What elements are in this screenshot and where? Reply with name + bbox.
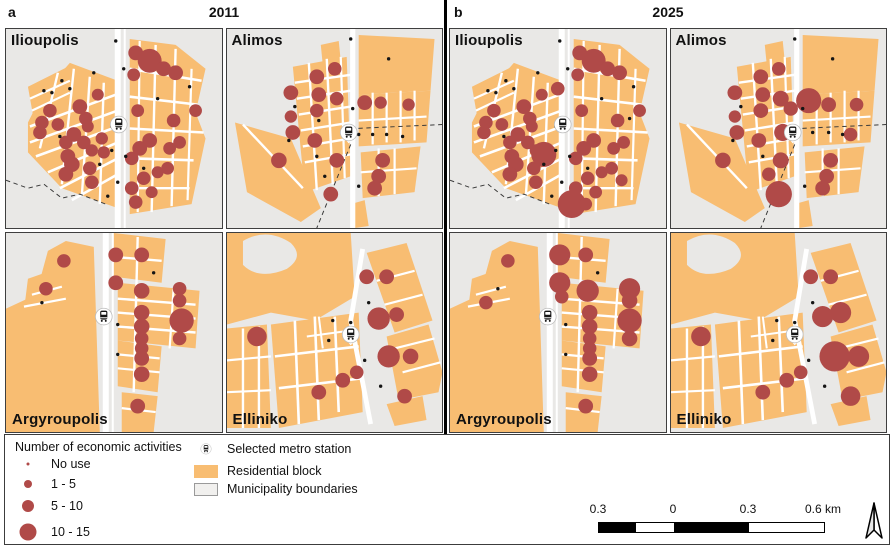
- no-use-symbol: [15, 456, 43, 472]
- map-label-elliniko: Elliniko: [677, 411, 732, 428]
- legend-label-10-15: 10 - 15: [51, 525, 90, 539]
- map-canvas-a-ilioupolis: [6, 29, 222, 228]
- map-canvas-b-ilioupolis: [450, 29, 666, 228]
- scale-label-1: 0: [670, 502, 677, 516]
- map-canvas-b-argyroupolis: [450, 233, 666, 432]
- legend-label-boundaries: Municipality boundaries: [227, 482, 358, 496]
- panel-b-year: 2025: [652, 4, 683, 20]
- map-label-ilioupolis: Ilioupolis: [11, 32, 79, 49]
- map-canvas-b-alimos: [671, 29, 887, 228]
- circle-5-10-symbol: [15, 495, 43, 517]
- map-label-alimos: Alimos: [232, 32, 283, 49]
- map-a-elliniko: Elliniko: [226, 232, 444, 433]
- map-b-argyroupolis: Argyroupolis: [449, 232, 667, 433]
- map-b-alimos: Alimos: [670, 28, 888, 229]
- map-label-elliniko: Elliniko: [233, 411, 288, 428]
- legend-label-1-5: 1 - 5: [51, 477, 76, 491]
- metro-station-icon: [199, 442, 213, 457]
- map-label-ilioupolis: Ilioupolis: [455, 32, 523, 49]
- scale-label-3: 0.6 km: [805, 502, 841, 516]
- panel-b-letter: b: [454, 4, 463, 20]
- scale-label-0: 0.3: [590, 502, 607, 516]
- circle-1-5-symbol: [15, 475, 43, 493]
- legend-label-5-10: 5 - 10: [51, 499, 83, 513]
- municipality-boundary-swatch: [194, 483, 218, 496]
- panel-a-year: 2011: [209, 4, 239, 20]
- panel-divider: [444, 0, 447, 434]
- map-canvas-a-elliniko: [227, 233, 443, 432]
- circle-10-15-symbol: [15, 519, 43, 545]
- figure-root: a 2011 b 2025 Ilioupolis Alimos Argyroup…: [0, 0, 892, 545]
- scale-bar-segments: [598, 522, 825, 533]
- legend-title: Number of economic activities: [15, 440, 182, 454]
- map-canvas-a-argyroupolis: [6, 233, 222, 432]
- map-canvas-b-elliniko: [671, 233, 887, 432]
- map-b-elliniko: Elliniko: [670, 232, 888, 433]
- map-canvas-a-alimos: [227, 29, 443, 228]
- panel-a-letter: a: [8, 4, 16, 20]
- map-a-ilioupolis: Ilioupolis: [5, 28, 223, 229]
- map-a-alimos: Alimos: [226, 28, 444, 229]
- map-label-alimos: Alimos: [676, 32, 727, 49]
- legend-strip: Number of economic activities No use 1 -…: [4, 434, 890, 545]
- north-arrow-icon: [862, 501, 886, 541]
- map-label-argyroupolis: Argyroupolis: [456, 411, 552, 428]
- map-a-argyroupolis: Argyroupolis: [5, 232, 223, 433]
- map-b-ilioupolis: Ilioupolis: [449, 28, 667, 229]
- scale-bar: 0.3 0 0.3 0.6 km: [598, 522, 823, 532]
- map-label-argyroupolis: Argyroupolis: [12, 411, 108, 428]
- residential-block-swatch: [194, 465, 218, 478]
- legend-label-no-use: No use: [51, 457, 91, 471]
- panel-b-maps: Ilioupolis Alimos Argyroupolis Elliniko: [449, 28, 887, 433]
- legend-label-residential: Residential block: [227, 464, 322, 478]
- panel-a-maps: Ilioupolis Alimos Argyroupolis Elliniko: [5, 28, 443, 433]
- scale-label-2: 0.3: [740, 502, 757, 516]
- legend-label-station: Selected metro station: [227, 442, 351, 456]
